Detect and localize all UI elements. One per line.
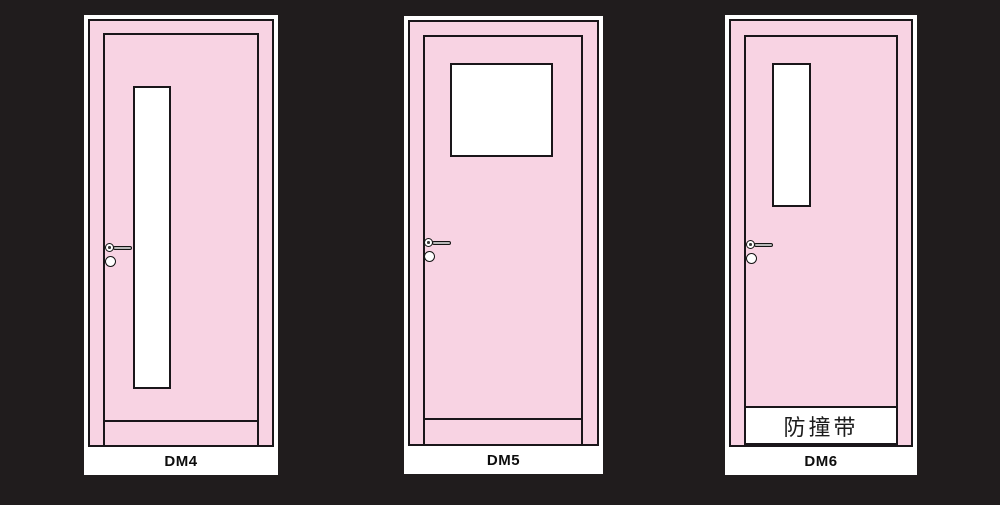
handle-lever-icon bbox=[113, 246, 132, 250]
door-card-dm5: DM5 bbox=[404, 16, 603, 474]
lock-knob-icon bbox=[746, 253, 757, 264]
door-model-label: DM4 bbox=[84, 447, 278, 475]
door-handle bbox=[746, 240, 776, 272]
left-stile-line bbox=[103, 422, 105, 445]
door-dm6-face: 防撞带 bbox=[731, 21, 911, 445]
door-dm5-face bbox=[410, 22, 597, 444]
right-stile-line bbox=[257, 422, 259, 445]
door-handle bbox=[105, 243, 135, 275]
door-handle bbox=[424, 238, 454, 270]
door-card-dm6: 防撞带 DM6 bbox=[725, 15, 917, 475]
right-stile-line bbox=[581, 420, 583, 444]
diagram-canvas: DM4 DM5 bbox=[0, 0, 1000, 505]
handle-lever-icon bbox=[432, 241, 451, 245]
handle-lever-icon bbox=[754, 243, 773, 247]
door-dm5 bbox=[408, 20, 599, 446]
door-inner-panel-outline bbox=[744, 35, 898, 408]
glass-window-square bbox=[450, 63, 553, 157]
bump-strip: 防撞带 bbox=[744, 406, 898, 445]
lock-knob-icon bbox=[105, 256, 116, 267]
door-card-dm4: DM4 bbox=[84, 15, 278, 475]
lock-knob-icon bbox=[424, 251, 435, 262]
door-model-label: DM5 bbox=[404, 446, 603, 474]
door-inner-panel-outline bbox=[103, 33, 259, 422]
door-model-label: DM6 bbox=[725, 447, 917, 475]
glass-window-narrow-top bbox=[772, 63, 811, 207]
door-dm4 bbox=[88, 19, 274, 447]
left-stile-line bbox=[423, 420, 425, 444]
door-dm6: 防撞带 bbox=[729, 19, 913, 447]
bump-strip-label: 防撞带 bbox=[783, 410, 858, 442]
glass-window-tall-narrow bbox=[133, 86, 171, 389]
door-dm4-face bbox=[90, 21, 272, 445]
